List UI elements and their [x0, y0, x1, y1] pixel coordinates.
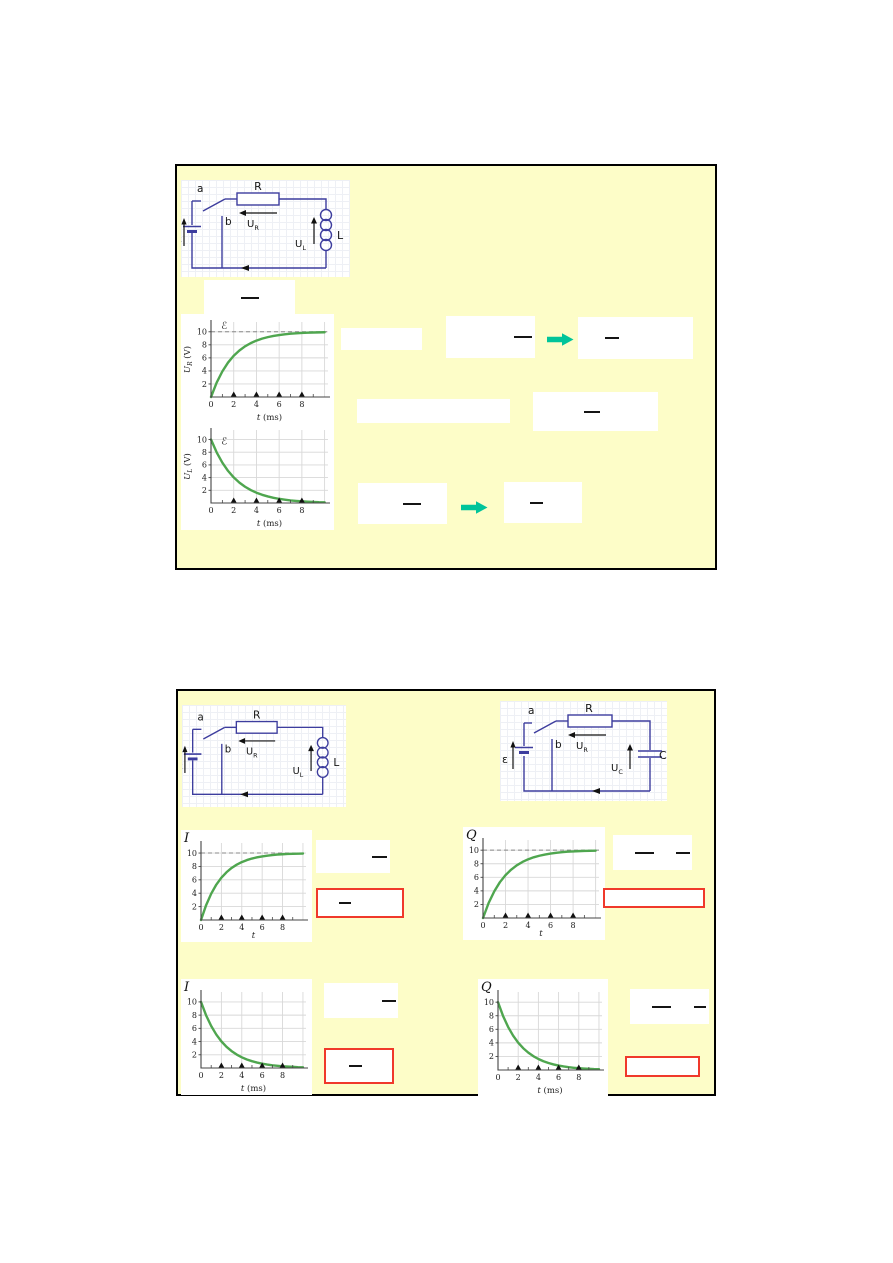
svg-text:6: 6: [277, 400, 282, 409]
answer-box: [357, 399, 510, 423]
svg-text:2: 2: [192, 1051, 197, 1060]
svg-text:8: 8: [299, 400, 304, 409]
chart-i-vs-t-decay: 24681002468It (ms): [181, 979, 312, 1095]
svg-text:2: 2: [231, 400, 236, 409]
svg-text:t: t: [252, 931, 256, 941]
svg-text:6: 6: [489, 1025, 494, 1034]
dash-placeholder: [652, 1006, 671, 1008]
answer-box: [533, 392, 658, 431]
svg-text:6: 6: [192, 876, 197, 885]
green-arrow-icon: [547, 332, 574, 347]
svg-text:8: 8: [192, 862, 197, 871]
rl-circuit-diagram: [181, 180, 350, 277]
svg-text:2: 2: [231, 506, 236, 515]
svg-text:ℰ: ℰ: [221, 321, 227, 332]
svg-text:t: t: [539, 929, 543, 939]
chart-canvas: 24681002468ℰUR (V)t (ms): [181, 314, 334, 424]
svg-text:6: 6: [202, 354, 207, 363]
svg-text:10: 10: [197, 328, 207, 337]
svg-text:UL (V): UL (V): [182, 453, 194, 480]
dash-placeholder: [584, 411, 600, 413]
svg-text:10: 10: [484, 998, 494, 1007]
dash-placeholder: [605, 337, 619, 339]
svg-text:t (ms): t (ms): [257, 518, 282, 529]
answer-box: [316, 840, 390, 873]
dash-placeholder: [403, 503, 421, 505]
green-arrow-icon: [461, 500, 488, 515]
svg-text:0: 0: [198, 1071, 203, 1080]
answer-box-red: [603, 888, 705, 908]
dash-placeholder: [530, 502, 543, 504]
svg-text:6: 6: [474, 873, 479, 882]
answer-box: [504, 482, 582, 523]
answer-box: [446, 316, 535, 358]
svg-text:ℰ: ℰ: [221, 437, 227, 448]
chart-q-vs-t-rise: 24681002468Qt: [463, 827, 605, 940]
svg-text:6: 6: [202, 461, 207, 470]
answer-box: [341, 328, 422, 350]
svg-text:6: 6: [548, 921, 553, 930]
chart-i-vs-t-rise: 24681002468It: [181, 830, 312, 942]
svg-text:4: 4: [239, 923, 244, 932]
dash-placeholder: [339, 902, 351, 904]
answer-box-red: [625, 1056, 700, 1077]
svg-text:2: 2: [219, 1071, 224, 1080]
svg-text:0: 0: [480, 921, 485, 930]
svg-text:8: 8: [280, 923, 285, 932]
svg-text:4: 4: [254, 400, 259, 409]
svg-text:8: 8: [299, 506, 304, 515]
svg-text:8: 8: [489, 1012, 494, 1021]
chart-canvas: 24681002468It (ms): [181, 979, 312, 1095]
dash-placeholder: [372, 856, 387, 858]
svg-text:10: 10: [187, 849, 197, 858]
svg-text:4: 4: [536, 1073, 541, 1082]
chart-canvas: 24681002468ℰUL (V)t (ms): [181, 422, 334, 530]
svg-text:6: 6: [192, 1024, 197, 1033]
svg-text:10: 10: [197, 435, 207, 444]
slide-rl-rc-comparison: 24681002468It 24681002468Qt 24681002468I…: [176, 689, 716, 1096]
svg-text:4: 4: [254, 506, 259, 515]
svg-text:I: I: [183, 980, 190, 995]
svg-text:0: 0: [208, 506, 213, 515]
svg-text:8: 8: [474, 860, 479, 869]
svg-text:4: 4: [489, 1039, 494, 1048]
svg-text:2: 2: [489, 1052, 494, 1061]
answer-box: [630, 989, 709, 1024]
svg-text:2: 2: [192, 902, 197, 911]
chart-canvas: 24681002468Qt: [463, 827, 605, 940]
svg-text:4: 4: [526, 921, 531, 930]
chart-canvas: 24681002468It: [181, 830, 312, 942]
svg-text:2: 2: [503, 921, 508, 930]
dash-placeholder: [635, 852, 654, 854]
svg-text:Q: Q: [481, 980, 492, 995]
svg-text:0: 0: [198, 923, 203, 932]
svg-text:4: 4: [202, 367, 207, 376]
svg-text:6: 6: [277, 506, 282, 515]
chart-ul-vs-t: 24681002468ℰUL (V)t (ms): [181, 422, 334, 530]
svg-text:0: 0: [495, 1073, 500, 1082]
rc-circuit-drawing: [500, 701, 667, 801]
svg-text:2: 2: [202, 380, 207, 389]
svg-text:Q: Q: [466, 828, 477, 843]
svg-text:2: 2: [474, 900, 479, 909]
answer-box: [613, 835, 692, 870]
rc-circuit-diagram: [500, 701, 667, 801]
dash-placeholder: [676, 852, 690, 854]
slide-rl-voltages: 24681002468ℰUR (V)t (ms) 24681002468ℰUL …: [175, 164, 717, 570]
dash-placeholder: [514, 336, 532, 338]
document-page: 24681002468ℰUR (V)t (ms) 24681002468ℰUL …: [0, 0, 893, 1263]
svg-text:4: 4: [202, 473, 207, 482]
answer-box-red: [316, 888, 404, 918]
rl-circuit-drawing: [181, 180, 350, 277]
dash-placeholder: [694, 1006, 706, 1008]
rl-circuit-diagram: [182, 705, 346, 807]
svg-text:8: 8: [202, 341, 207, 350]
answer-box: [324, 983, 398, 1018]
svg-text:2: 2: [516, 1073, 521, 1082]
answer-box: [578, 317, 693, 359]
dash-placeholder: [349, 1065, 362, 1067]
svg-text:2: 2: [202, 486, 207, 495]
svg-text:10: 10: [187, 998, 197, 1007]
svg-text:UR (V): UR (V): [182, 346, 194, 373]
svg-text:t (ms): t (ms): [537, 1085, 562, 1096]
svg-text:2: 2: [219, 923, 224, 932]
svg-text:4: 4: [192, 889, 197, 898]
svg-text:6: 6: [260, 923, 265, 932]
answer-box-red: [324, 1048, 394, 1084]
chart-ur-vs-t: 24681002468ℰUR (V)t (ms): [181, 314, 334, 424]
svg-text:6: 6: [260, 1071, 265, 1080]
svg-text:8: 8: [202, 448, 207, 457]
svg-text:4: 4: [192, 1037, 197, 1046]
svg-text:0: 0: [208, 400, 213, 409]
svg-text:I: I: [183, 831, 190, 846]
chart-canvas: 24681002468Qt (ms): [478, 979, 608, 1097]
svg-text:8: 8: [576, 1073, 581, 1082]
svg-text:4: 4: [474, 887, 479, 896]
svg-text:8: 8: [280, 1071, 285, 1080]
chart-q-vs-t-decay: 24681002468Qt (ms): [478, 979, 608, 1097]
answer-box: [358, 483, 447, 524]
svg-text:10: 10: [469, 846, 479, 855]
dash-placeholder: [382, 1000, 396, 1002]
svg-text:8: 8: [192, 1011, 197, 1020]
svg-text:4: 4: [239, 1071, 244, 1080]
svg-text:6: 6: [556, 1073, 561, 1082]
svg-text:8: 8: [571, 921, 576, 930]
answer-box: [204, 280, 295, 315]
svg-text:t (ms): t (ms): [241, 1083, 266, 1094]
rl-circuit-drawing: [182, 705, 346, 807]
dash-placeholder: [241, 297, 259, 299]
